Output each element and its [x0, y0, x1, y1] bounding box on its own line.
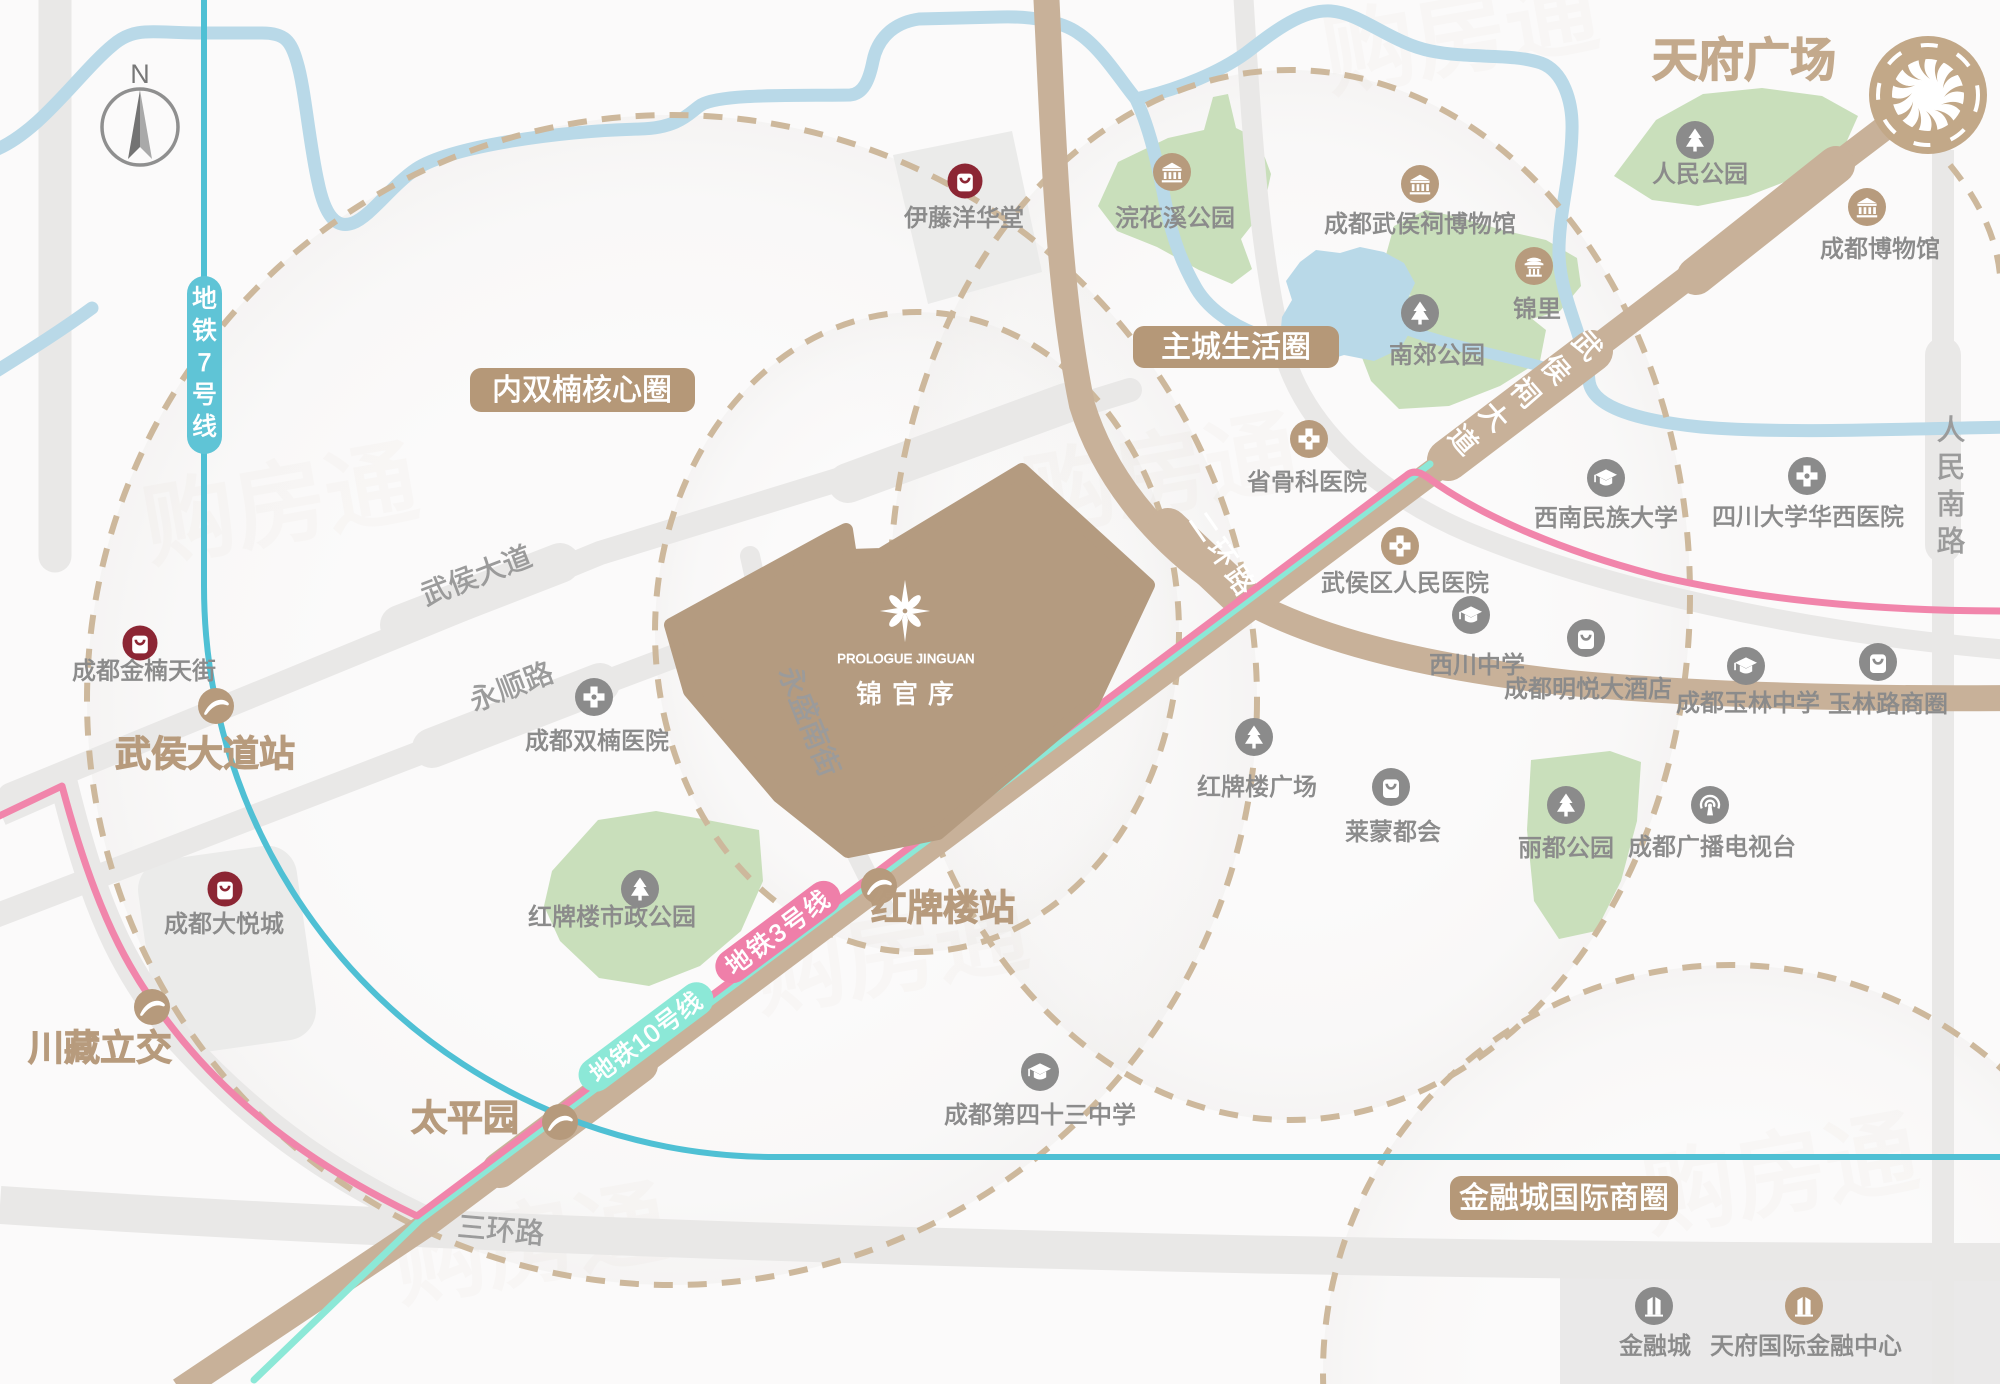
svg-text:西川中学: 西川中学	[1429, 652, 1525, 679]
svg-text:南: 南	[1936, 488, 1965, 521]
svg-text:金融城: 金融城	[1619, 1333, 1691, 1360]
svg-text:川藏立交: 川藏立交	[28, 1027, 172, 1068]
svg-text:PROLOGUE JINGUAN: PROLOGUE JINGUAN	[837, 651, 975, 666]
svg-text:浣花溪公园: 浣花溪公园	[1115, 205, 1235, 232]
svg-text:西南民族大学: 西南民族大学	[1534, 505, 1678, 532]
svg-text:成都大悦城: 成都大悦城	[164, 911, 284, 938]
svg-text:成都金楠天街: 成都金楠天街	[72, 658, 216, 685]
svg-text:内双楠核心圈: 内双楠核心圈	[492, 374, 672, 407]
svg-text:N: N	[130, 59, 150, 89]
svg-text:成都广播电视台: 成都广播电视台	[1628, 834, 1796, 861]
svg-text:7: 7	[198, 349, 212, 377]
svg-text:天府国际金融中心: 天府国际金融中心	[1710, 1333, 1902, 1360]
svg-text:金融城国际商圈: 金融城国际商圈	[1459, 1182, 1669, 1215]
svg-text:人: 人	[1936, 415, 1965, 447]
svg-text:地: 地	[192, 285, 217, 313]
svg-text:人民公园: 人民公园	[1652, 161, 1748, 188]
svg-text:伊藤洋华堂: 伊藤洋华堂	[904, 205, 1024, 232]
svg-text:莱蒙都会: 莱蒙都会	[1345, 819, 1441, 846]
svg-text:太平园: 太平园	[411, 1097, 519, 1138]
svg-text:成都武侯祠博物馆: 成都武侯祠博物馆	[1324, 211, 1516, 238]
svg-text:成都第四十三中学: 成都第四十三中学	[944, 1102, 1136, 1129]
svg-text:红牌楼站: 红牌楼站	[871, 887, 1015, 928]
svg-text:线: 线	[192, 413, 217, 441]
svg-text:成都博物馆: 成都博物馆	[1820, 236, 1940, 263]
svg-text:南郊公园: 南郊公园	[1389, 342, 1485, 369]
svg-text:红牌楼市政公园: 红牌楼市政公园	[528, 904, 696, 931]
svg-text:民: 民	[1936, 452, 1965, 484]
svg-text:玉林路商圈: 玉林路商圈	[1828, 691, 1948, 718]
svg-text:成都玉林中学: 成都玉林中学	[1676, 690, 1820, 717]
svg-text:锦官序: 锦官序	[856, 679, 964, 709]
svg-text:成都明悦大酒店: 成都明悦大酒店	[1504, 676, 1672, 703]
svg-text:主城生活圈: 主城生活圈	[1161, 331, 1311, 364]
svg-text:四川大学华西医院: 四川大学华西医院	[1712, 504, 1904, 531]
svg-text:武侯大道站: 武侯大道站	[115, 733, 295, 774]
svg-text:红牌楼广场: 红牌楼广场	[1197, 774, 1317, 801]
svg-text:省骨科医院: 省骨科医院	[1247, 469, 1367, 496]
svg-text:丽都公园: 丽都公园	[1518, 835, 1614, 862]
svg-text:铁: 铁	[192, 317, 217, 345]
svg-text:锦里: 锦里	[1513, 296, 1561, 323]
svg-text:成都双楠医院: 成都双楠医院	[525, 728, 669, 755]
svg-text:号: 号	[192, 381, 217, 409]
svg-text:天府广场: 天府广场	[1652, 34, 1836, 86]
svg-text:路: 路	[1936, 525, 1965, 558]
svg-text:武侯区人民医院: 武侯区人民医院	[1321, 570, 1489, 597]
